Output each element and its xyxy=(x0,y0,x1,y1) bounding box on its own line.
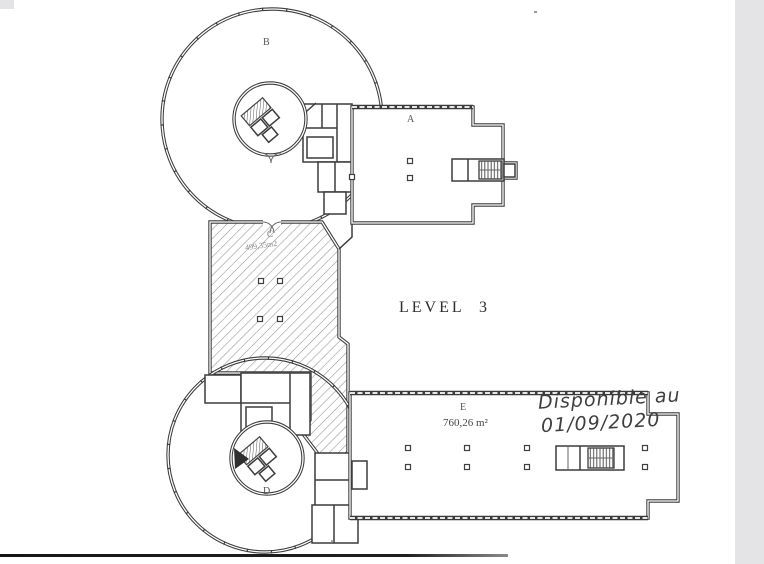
floor-plan-drawing xyxy=(0,0,764,564)
section-e-area-label: 760,26 m² xyxy=(443,417,488,429)
section-c-label: C xyxy=(267,229,273,239)
scan-speck xyxy=(331,540,333,542)
section-a-label: A xyxy=(407,114,415,125)
scan-edge-strip xyxy=(735,0,764,564)
wing-a xyxy=(350,107,517,223)
stair-core-e xyxy=(556,446,624,470)
section-b-label: B xyxy=(263,37,271,48)
scanned-floor-plan-page: B A C 499,35m2 LEVEL 3 D E 760,26 m² Dis… xyxy=(0,0,764,564)
section-e-label: E xyxy=(460,402,467,413)
scan-bottom-line xyxy=(0,554,508,557)
scan-speck xyxy=(534,11,537,13)
level-title: LEVEL 3 xyxy=(399,299,490,317)
core-tower-d xyxy=(231,422,303,494)
section-d-label: D xyxy=(263,486,271,497)
corridor-connector-wall xyxy=(339,224,352,249)
scan-corner-notch xyxy=(0,0,14,9)
